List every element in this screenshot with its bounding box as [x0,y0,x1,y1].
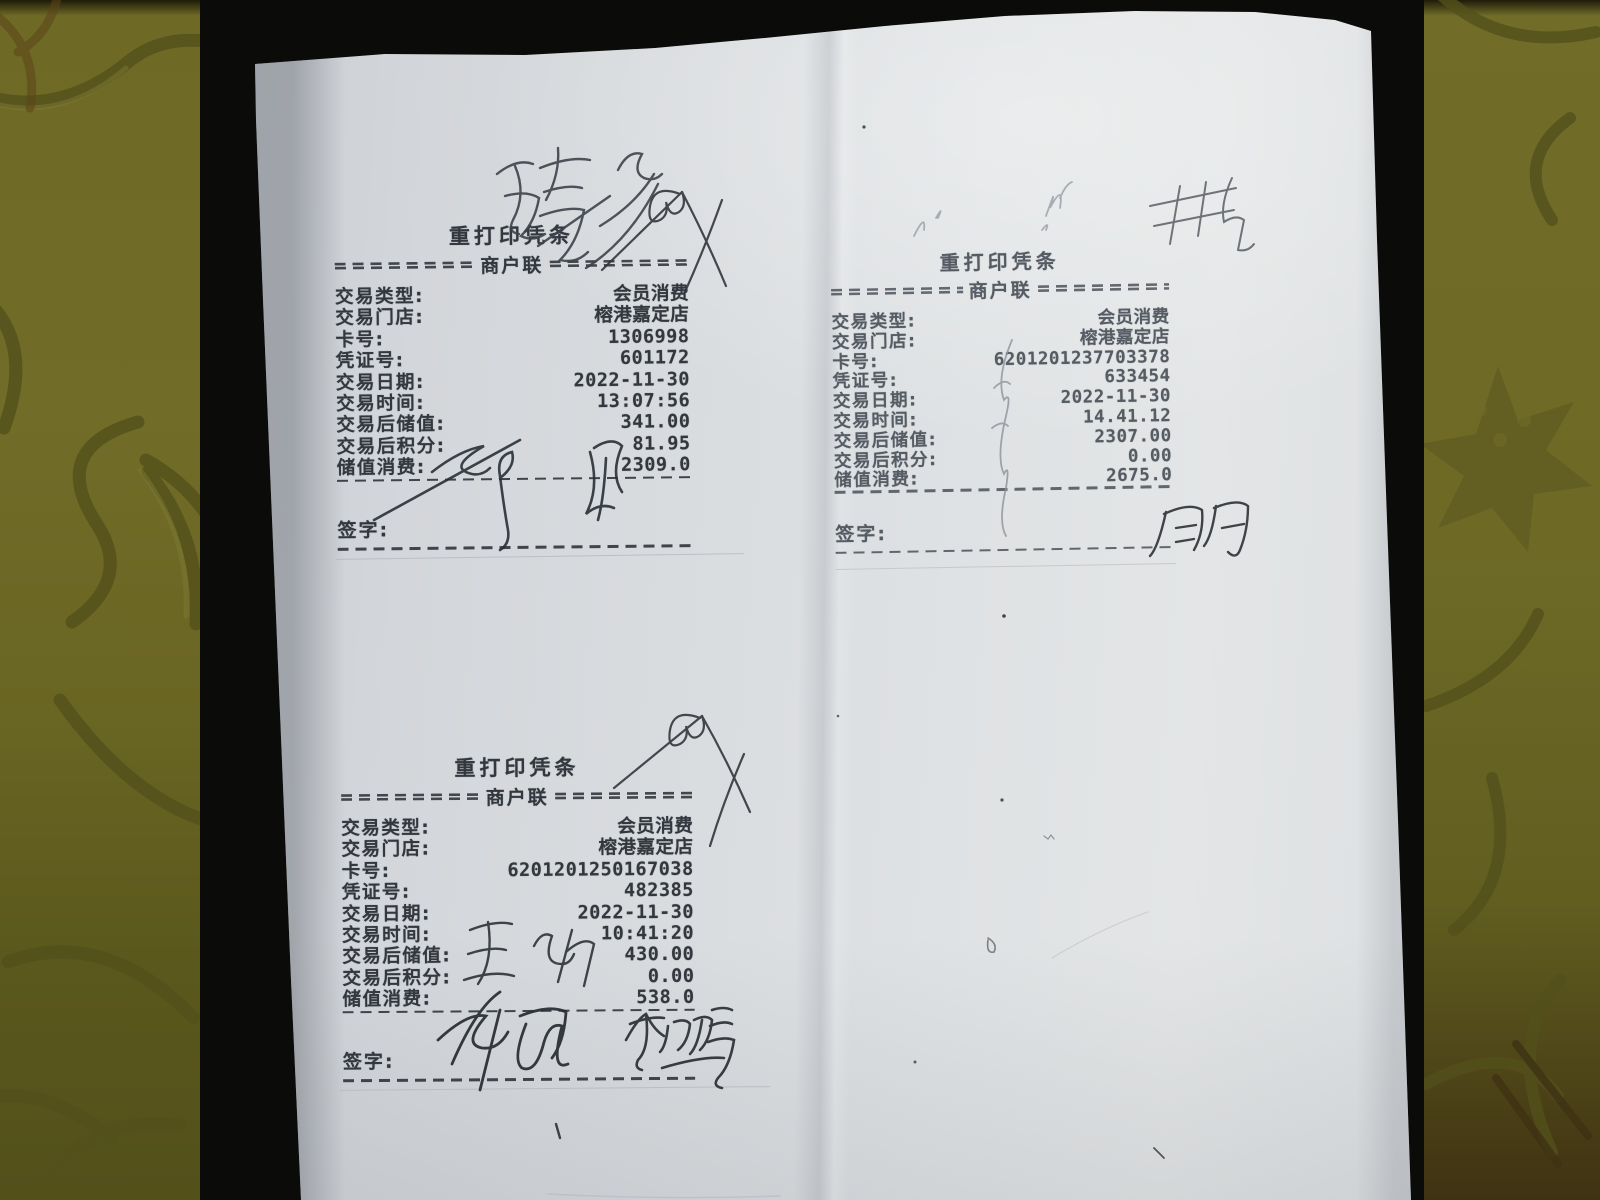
row-voucher-number: 凭证号:601172 [336,343,690,368]
receipt-header: 重打印凭条 商户联 [334,218,689,280]
receipt-top-right: 重打印凭条 商户联 交易类型:会员消费 交易门店:榕港嘉定店 卡号:620120… [830,243,1173,554]
fabric-pattern-right-art [1420,0,1600,1200]
receipt-header: 重打印凭条 商户联 [341,751,693,811]
dash-flank [831,287,963,296]
row-points-after: 交易后积分:81.95 [336,429,690,454]
signature-line-label: 签字: [835,514,1173,547]
receipt-top-left: 重打印凭条 商户联 交易类型:会员消费 交易门店:榕港嘉定店 卡号:130699… [334,218,691,550]
receipt-copy-line: 商户联 [341,782,693,811]
row-date: 交易日期:2022-11-30 [336,365,690,390]
row-time: 交易时间:13:07:56 [336,386,690,411]
row-balance-after: 交易后储值:430.00 [342,940,694,964]
receipt-copy-line: 商户联 [831,273,1169,306]
row-stored-value-spent: 储值消费:538.0 [342,983,694,1007]
signature-line-label: 签字: [337,512,691,543]
row-store: 交易门店:榕港嘉定店 [335,301,689,326]
row-stored-value-spent: 储值消费:2309.0 [337,450,691,475]
dash-flank [549,259,689,267]
fabric-pattern-left-art [0,0,208,1200]
photo-scene: 重打印凭条 商户联 交易类型:会员消费 交易门店:榕港嘉定店 卡号:130699… [0,0,1600,1200]
row-store: 交易门店:榕港嘉定店 [341,833,693,857]
row-date: 交易日期:2022-11-30 [342,897,694,921]
signature-line-label: 签字: [343,1045,695,1074]
dash-flank [335,261,475,269]
receipt-copy-label: 商户联 [480,251,543,279]
fabric-background-left [0,0,208,1200]
receipt-title: 重打印凭条 [830,243,1168,278]
receipt-copy-label: 商户联 [486,783,549,810]
receipt-header: 重打印凭条 商户联 [830,243,1169,306]
dash-flank [1038,283,1170,292]
receipt-title: 重打印凭条 [334,218,688,252]
dash-flank [341,793,480,801]
receipt-bottom-left: 重打印凭条 商户联 交易类型:会员消费 交易门店:榕港嘉定店 卡号:620120… [341,751,695,1082]
dash-flank [555,792,694,800]
receipt-copy-label: 商户联 [968,275,1031,303]
paper-crease [794,0,860,1200]
receipt-rows: 交易类型:会员消费 交易门店:榕港嘉定店 卡号:6201201237703378… [831,303,1172,487]
row-time: 交易时间:10:41:20 [342,919,694,943]
receipt-copy-line: 商户联 [335,249,689,280]
row-transaction-type: 交易类型:会员消费 [341,812,693,836]
receipt-rows: 交易类型:会员消费 交易门店:榕港嘉定店 卡号:1306998 凭证号:6011… [335,279,691,475]
fabric-background-right [1420,0,1600,1200]
receipt-rows: 交易类型:会员消费 交易门店:榕港嘉定店 卡号:6201201250167038… [341,812,694,1007]
row-balance-after: 交易后储值:341.00 [336,407,690,432]
receipt-title: 重打印凭条 [341,751,693,783]
